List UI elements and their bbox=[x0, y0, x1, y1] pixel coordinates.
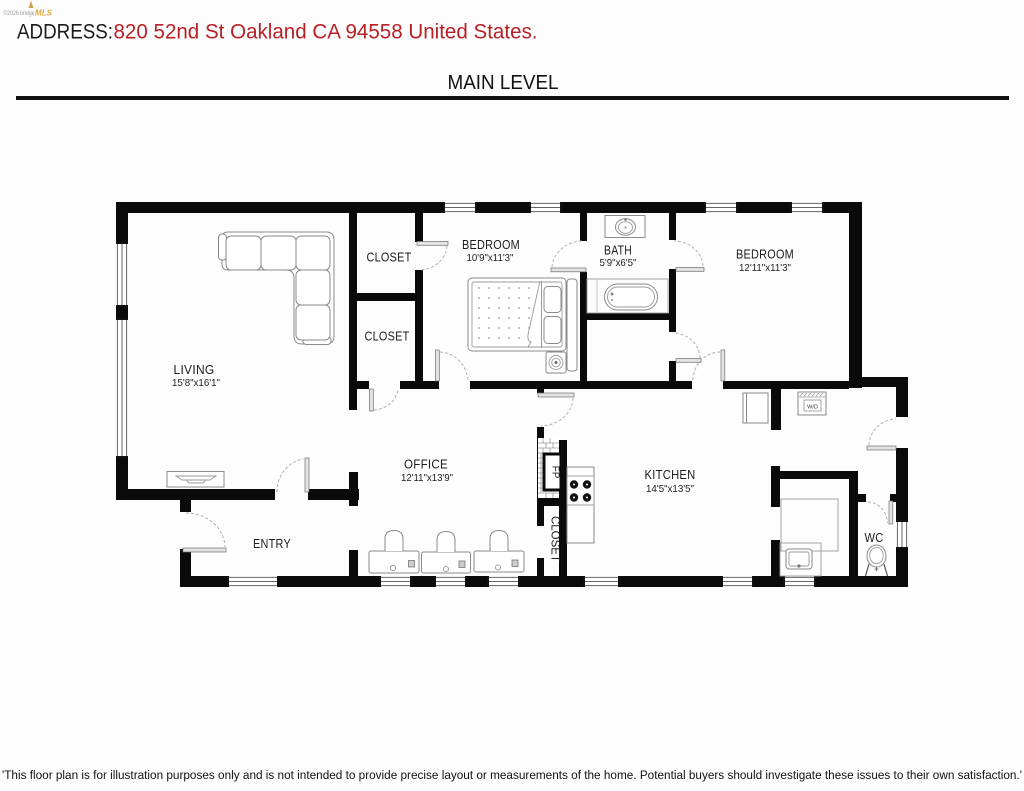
svg-text:BEDROOM: BEDROOM bbox=[462, 238, 520, 252]
svg-text:BEDROOM: BEDROOM bbox=[736, 248, 794, 262]
svg-text:14'5"x13'5": 14'5"x13'5" bbox=[646, 483, 694, 495]
svg-text:MAIN LEVEL: MAIN LEVEL bbox=[448, 72, 559, 94]
svg-text:LIVING: LIVING bbox=[174, 363, 215, 377]
svg-text:15'8"x16'1": 15'8"x16'1" bbox=[172, 377, 220, 389]
svg-text:KITCHEN: KITCHEN bbox=[645, 468, 696, 482]
svg-text:MLS: MLS bbox=[35, 8, 52, 18]
svg-text:OFFICE: OFFICE bbox=[404, 458, 448, 472]
svg-text:CLOSET: CLOSET bbox=[367, 251, 412, 265]
svg-text:ENTRY: ENTRY bbox=[253, 537, 291, 551]
svg-text:12'11"x11'3": 12'11"x11'3" bbox=[739, 262, 791, 274]
svg-text:WC: WC bbox=[865, 531, 884, 545]
svg-text:W/D: W/D bbox=[807, 405, 818, 411]
svg-text:820 52nd St Oakland CA 94558 U: 820 52nd St Oakland CA 94558 United Stat… bbox=[114, 20, 538, 44]
svg-text:12'11"x13'9": 12'11"x13'9" bbox=[401, 472, 453, 484]
svg-text:CLOSET: CLOSET bbox=[365, 330, 410, 344]
svg-text:'This floor plan is for illust: 'This floor plan is for illustration pur… bbox=[2, 768, 1022, 782]
svg-text:©2026 bridge: ©2026 bridge bbox=[4, 9, 35, 17]
svg-text:BATH: BATH bbox=[604, 244, 632, 258]
svg-text:10'9"x11'3": 10'9"x11'3" bbox=[467, 252, 514, 264]
svg-text:5'9"x6'5": 5'9"x6'5" bbox=[600, 257, 637, 269]
svg-text:ADDRESS:: ADDRESS: bbox=[17, 20, 113, 44]
svg-text:FP: FP bbox=[550, 466, 561, 479]
svg-text:CLOSET: CLOSET bbox=[549, 516, 561, 562]
